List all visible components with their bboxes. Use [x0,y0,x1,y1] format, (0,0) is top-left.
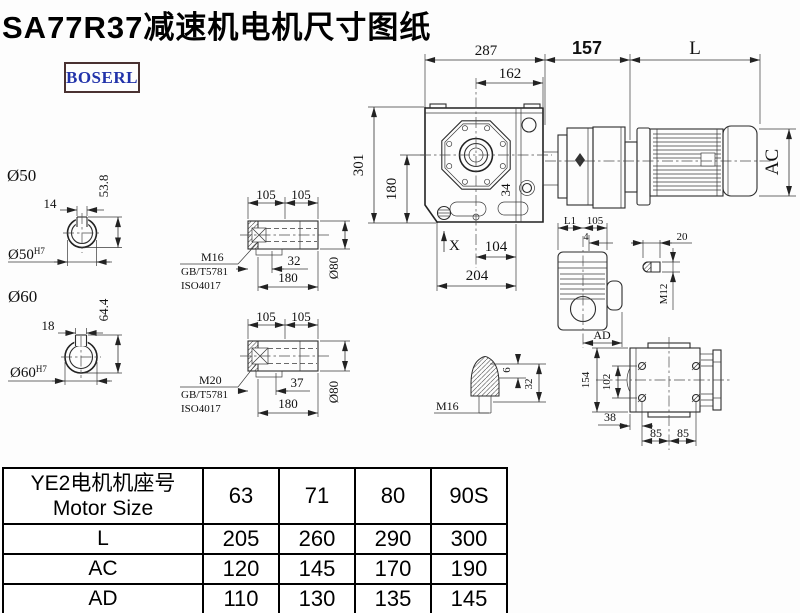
cell-AD-71: 130 [279,584,355,613]
std-label-gb2: GB/T5781 [181,389,228,401]
motor-side-body [558,252,607,330]
dim-105-105-top: 105 105 [248,187,318,219]
cell-AC-90s: 190 [431,554,507,584]
dim-180-main: 180 [384,155,424,223]
dim-105-105-top2: 105 105 [248,309,318,339]
technical-drawing: 34 [0,0,800,462]
table-size-63: 63 [203,468,279,524]
dim-label-180: 180 [384,178,400,201]
motor-assembly-side [543,126,772,208]
gearbox-outline [425,108,543,222]
dim-label-105e: 105 [587,215,604,227]
dim-label-32b: 32 [523,379,535,390]
hollow-shaft-detail-m20: 105 105 M20 GB/T5781 ISO4017 37 [180,309,350,417]
dim-32-plug: 32 [523,364,539,402]
motor-nameplate [701,153,715,166]
dim-label-85a: 85 [650,426,662,440]
dim-label-20: 20 [677,231,689,243]
base-slot [498,202,528,215]
dim-label-L: L [689,38,701,59]
dim-20: 20 [631,231,692,258]
dim-label-18: 18 [42,318,55,333]
motor-side-fins [560,274,605,299]
dim-label-M12: M12 [658,284,670,305]
table-row-AC: AC 120 145 170 190 [3,554,507,584]
dim-label-180b: 180 [278,396,298,411]
motor-flange [637,128,650,205]
oil-plug [438,207,451,220]
plug-cone [471,357,499,397]
bolt-callout-m20: M20 GB/T5781 ISO4017 [180,364,256,415]
dim-label-4: 4 [584,232,589,243]
cell-AD-90s: 145 [431,584,507,613]
bore-fit-label-60: Ø60H7 [10,364,47,381]
dimension-table: YE2电机机座号 Motor Size 63 71 80 90S L 205 2… [2,467,508,613]
cell-AC-80: 170 [355,554,431,584]
plug-detail-m16: M16 6 32 [434,354,546,413]
dim-label-105c: 105 [256,309,276,324]
cell-AD-63: 110 [203,584,279,613]
output-flange-view: 154 102 38 85 85 [580,337,730,450]
dim-label-64.4: 64.4 [96,298,111,321]
drawing-page: SA77R37减速机电机尺寸图纸 BOSERL [0,0,800,613]
balance-mark [575,153,585,167]
housing-hole-bottom [523,184,532,193]
shaft-section-50: Ø50 14 53.8 [7,166,122,266]
dim-label-AC: AC [762,149,783,175]
cell-L-80: 290 [355,524,431,554]
dim-label-162: 162 [499,66,522,82]
dim-label-37: 37 [291,375,305,390]
dim-label-d80a: Ø80 [326,257,341,279]
dim-d80-shaft2: Ø80 [320,341,350,403]
dim-bore-60H7: Ø60H7 [8,362,112,385]
dim-53.8: 53.8 [84,175,122,248]
dim-label-38: 38 [604,410,616,424]
bolt-label-m20: M20 [199,373,222,387]
dim-label-M16: M16 [436,399,459,413]
dim-180-shaft2: 180 [258,373,318,417]
table-header-cn: YE2电机机座号 [4,471,202,496]
dim-37: 37 [240,373,310,395]
main-view: 34 [351,38,796,291]
dim-label-102: 102 [601,374,613,391]
dim-X: X [444,231,460,254]
dim-label-301: 301 [351,154,367,177]
dim-label-6: 6 [501,367,513,373]
base-slot [450,202,486,216]
dim-6: 6 [501,354,518,388]
dim-label-105b: 105 [291,187,311,202]
shaft-section-60: Ø60 18 64.4 [8,287,122,385]
dim-label-180a: 180 [278,270,298,285]
dim-L1-105: L1 105 [558,215,607,250]
dim-label-32: 32 [288,253,301,268]
dim-label-287: 287 [475,43,498,59]
table-size-90s: 90S [431,468,507,524]
retaining-plate [256,249,282,255]
hollow-shaft-detail-m16: 105 105 M16 GB/T5781 ISO4017 32 [180,187,350,292]
cell-AD-80: 135 [355,584,431,613]
section-label-d50: Ø50 [7,166,36,185]
dim-4: 4 [584,232,614,251]
row-label-AD: AD [3,584,203,613]
bolt-label-m16: M16 [201,250,224,264]
dim-label-d80b: Ø80 [326,381,341,403]
row-label-L: L [3,524,203,554]
table-header-motor-size: YE2电机机座号 Motor Size [3,468,203,524]
table-size-71: 71 [279,468,355,524]
dim-102: 102 [601,366,637,398]
terminal-box-side [607,281,622,310]
dim-64.4: 64.4 [83,298,122,373]
dim-157: 157 [545,38,630,60]
dim-label-157: 157 [572,38,602,58]
dim-key-14: 14 [44,196,105,216]
motor-side-view-ad: L1 105 4 AD [558,215,622,348]
row-label-AC: AC [3,554,203,584]
bolt-callout-m16: M16 GB/T5781 ISO4017 [180,242,258,292]
housing-hole-top [522,118,536,132]
dim-label-AD: AD [593,328,611,342]
std-label-gb: GB/T5781 [181,266,228,278]
dim-AC: AC [759,129,796,196]
table-row-AD: AD 110 130 135 145 [3,584,507,613]
table-header-en: Motor Size [4,496,202,521]
dim-label-85b: 85 [677,426,689,440]
dim-d80-shaft1: Ø80 [320,221,350,279]
dim-key-18: 18 [42,318,104,334]
dim-label-154: 154 [580,371,592,388]
section-label-d60: Ø60 [8,287,37,306]
dim-162: 162 [476,66,543,107]
bore-fit-label-50: Ø50H7 [8,246,45,263]
dim-label-105d: 105 [291,309,311,324]
dim-label-204: 204 [466,268,489,284]
std-label-iso2: ISO4017 [181,403,221,415]
cell-L-90s: 300 [431,524,507,554]
adapter-flange [558,135,567,198]
std-label-iso: ISO4017 [181,280,221,292]
cell-AC-63: 120 [203,554,279,584]
table-size-80: 80 [355,468,431,524]
dim-bore-50H7: Ø50H7 [8,240,112,266]
table-row-L: L 205 260 290 300 [3,524,507,554]
dim-label-105a: 105 [256,187,276,202]
dim-M12: M12 [658,248,680,310]
cell-AC-71: 145 [279,554,355,584]
dim-label-34: 34 [498,183,513,197]
cell-L-63: 205 [203,524,279,554]
cell-L-71: 260 [279,524,355,554]
dim-label-X: X [449,238,460,254]
dim-label-53.8: 53.8 [96,175,111,198]
key-detail: 20 M12 [631,231,692,310]
dim-label-L1: L1 [564,215,576,227]
retaining-plate [256,371,282,377]
dim-label-14: 14 [44,196,58,211]
dim-38: 38 [598,402,653,446]
dim-204: 204 [437,224,516,291]
table-header-row: YE2电机机座号 Motor Size 63 71 80 90S [3,468,507,524]
dim-label-104: 104 [485,239,508,255]
dim-L: L [630,38,760,140]
